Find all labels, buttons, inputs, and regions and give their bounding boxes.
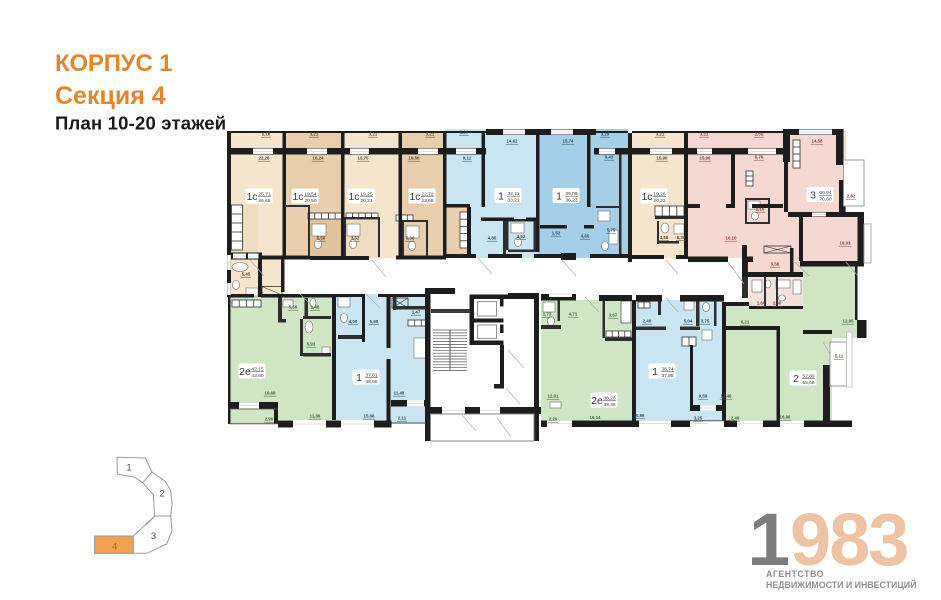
svg-text:3,56: 3,56 (660, 235, 669, 240)
svg-text:3: 3 (810, 189, 816, 201)
svg-text:1с: 1с (246, 191, 257, 203)
svg-text:12,95: 12,95 (843, 319, 855, 324)
svg-text:2: 2 (793, 373, 799, 385)
svg-text:1,47: 1,47 (412, 310, 421, 315)
svg-text:9,59: 9,59 (699, 394, 708, 399)
svg-text:4: 4 (112, 542, 117, 553)
svg-text:1,48: 1,48 (311, 305, 320, 310)
svg-text:5,16: 5,16 (262, 132, 271, 137)
svg-text:4,71: 4,71 (569, 312, 578, 317)
svg-text:1с: 1с (292, 191, 303, 203)
svg-text:4,65: 4,65 (581, 234, 590, 239)
svg-text:15,75: 15,75 (358, 156, 370, 161)
svg-text:20,22: 20,22 (653, 198, 666, 204)
svg-text:1,73: 1,73 (543, 312, 552, 317)
svg-text:5,50: 5,50 (317, 236, 326, 241)
svg-text:1: 1 (556, 190, 562, 202)
svg-text:3,67: 3,67 (609, 313, 618, 318)
svg-text:1с: 1с (641, 191, 652, 203)
svg-text:1: 1 (652, 366, 658, 378)
svg-text:10,03: 10,03 (840, 241, 852, 246)
svg-text:9,12: 9,12 (463, 156, 472, 161)
svg-text:36,23: 36,23 (565, 197, 578, 203)
svg-text:2,20: 2,20 (549, 417, 558, 422)
svg-text:3,21: 3,21 (369, 132, 378, 137)
svg-text:15,74: 15,74 (563, 139, 575, 144)
svg-text:12,01: 12,01 (548, 394, 560, 399)
svg-text:20,50: 20,50 (304, 198, 317, 204)
svg-text:39,36: 39,36 (603, 402, 616, 408)
svg-text:3,52: 3,52 (517, 234, 526, 239)
svg-text:5,56: 5,56 (771, 262, 780, 267)
svg-text:12,46: 12,46 (721, 394, 733, 399)
svg-text:15,90: 15,90 (700, 156, 712, 161)
svg-text:5,45: 5,45 (242, 272, 251, 277)
svg-text:Секция 4: Секция 4 (55, 82, 166, 110)
svg-text:3,21: 3,21 (700, 132, 709, 137)
svg-text:НЕДВИЖИМОСТИ И ИНВЕСТИЦИЙ: НЕДВИЖИМОСТИ И ИНВЕСТИЦИЙ (766, 579, 916, 590)
svg-text:55,68: 55,68 (802, 380, 815, 386)
svg-text:33,21: 33,21 (507, 197, 520, 203)
svg-text:22,26: 22,26 (259, 156, 271, 161)
svg-text:19,68: 19,68 (265, 391, 277, 396)
svg-text:2,16: 2,16 (756, 207, 765, 212)
svg-text:2: 2 (159, 489, 164, 500)
svg-text:1: 1 (498, 190, 504, 202)
svg-text:2,55: 2,55 (755, 132, 764, 137)
svg-text:3,25: 3,25 (694, 416, 703, 421)
svg-text:20,21: 20,21 (360, 198, 373, 204)
svg-text:4,00: 4,00 (349, 319, 358, 324)
svg-text:16,86: 16,86 (780, 415, 792, 420)
svg-text:1: 1 (126, 463, 131, 474)
svg-text:2,40: 2,40 (643, 319, 652, 324)
svg-text:1: 1 (356, 372, 362, 384)
svg-text:11,48: 11,48 (394, 391, 405, 396)
svg-text:5,50: 5,50 (289, 305, 298, 310)
svg-text:15,06: 15,06 (364, 414, 376, 419)
svg-text:16,14: 16,14 (590, 415, 602, 420)
svg-text:9,43: 9,43 (605, 155, 614, 160)
svg-text:37,88: 37,88 (661, 373, 674, 379)
svg-text:3,21: 3,21 (426, 132, 435, 137)
svg-text:1,52: 1,52 (552, 231, 561, 236)
svg-text:2,20: 2,20 (460, 130, 469, 135)
svg-text:6,21: 6,21 (741, 320, 750, 325)
svg-text:3,29: 3,29 (601, 132, 610, 137)
svg-text:План 10-20 этажей: План 10-20 этажей (55, 113, 226, 134)
svg-text:5,93: 5,93 (307, 342, 316, 347)
svg-text:2е: 2е (591, 395, 603, 407)
svg-text:2,80: 2,80 (773, 301, 782, 306)
svg-text:5,36: 5,36 (677, 235, 686, 240)
svg-text:КОРПУС 1: КОРПУС 1 (55, 50, 172, 77)
svg-text:19,56: 19,56 (409, 156, 421, 161)
svg-text:3,21: 3,21 (310, 132, 319, 137)
svg-text:3,75: 3,75 (701, 319, 710, 324)
svg-text:5,75: 5,75 (607, 228, 616, 233)
svg-text:1,60: 1,60 (757, 301, 766, 306)
svg-text:2,11: 2,11 (398, 416, 407, 421)
svg-text:3: 3 (151, 531, 156, 542)
svg-text:43,60: 43,60 (251, 373, 264, 379)
svg-text:АГЕНТСТВО: АГЕНТСТВО (766, 569, 824, 579)
svg-text:8,76: 8,76 (755, 155, 764, 160)
svg-text:15,96: 15,96 (634, 413, 646, 418)
svg-text:14,58: 14,58 (812, 139, 824, 144)
svg-text:1с: 1с (348, 191, 359, 203)
svg-text:23,68: 23,68 (421, 198, 434, 204)
svg-text:14,62: 14,62 (507, 139, 519, 144)
svg-text:3,52: 3,52 (351, 236, 360, 241)
svg-text:10,10: 10,10 (726, 236, 738, 241)
svg-text:11,06: 11,06 (310, 414, 321, 419)
svg-text:38,66: 38,66 (365, 379, 378, 385)
svg-text:2,49: 2,49 (731, 416, 740, 421)
svg-text:4,85: 4,85 (488, 236, 497, 241)
svg-text:1с: 1с (409, 191, 420, 203)
svg-text:2,90: 2,90 (265, 417, 274, 422)
svg-text:26,65: 26,65 (258, 198, 271, 204)
svg-text:5,36: 5,36 (406, 236, 415, 241)
svg-text:15,90: 15,90 (657, 156, 669, 161)
svg-text:5,11: 5,11 (835, 354, 844, 359)
svg-text:70,60: 70,60 (819, 196, 832, 202)
svg-text:16,24: 16,24 (313, 156, 325, 161)
svg-text:5,04: 5,04 (684, 319, 693, 324)
svg-text:2е: 2е (239, 366, 251, 378)
svg-text:3,21: 3,21 (656, 132, 665, 137)
svg-text:5,60: 5,60 (370, 319, 379, 324)
svg-text:2,82: 2,82 (847, 194, 856, 199)
